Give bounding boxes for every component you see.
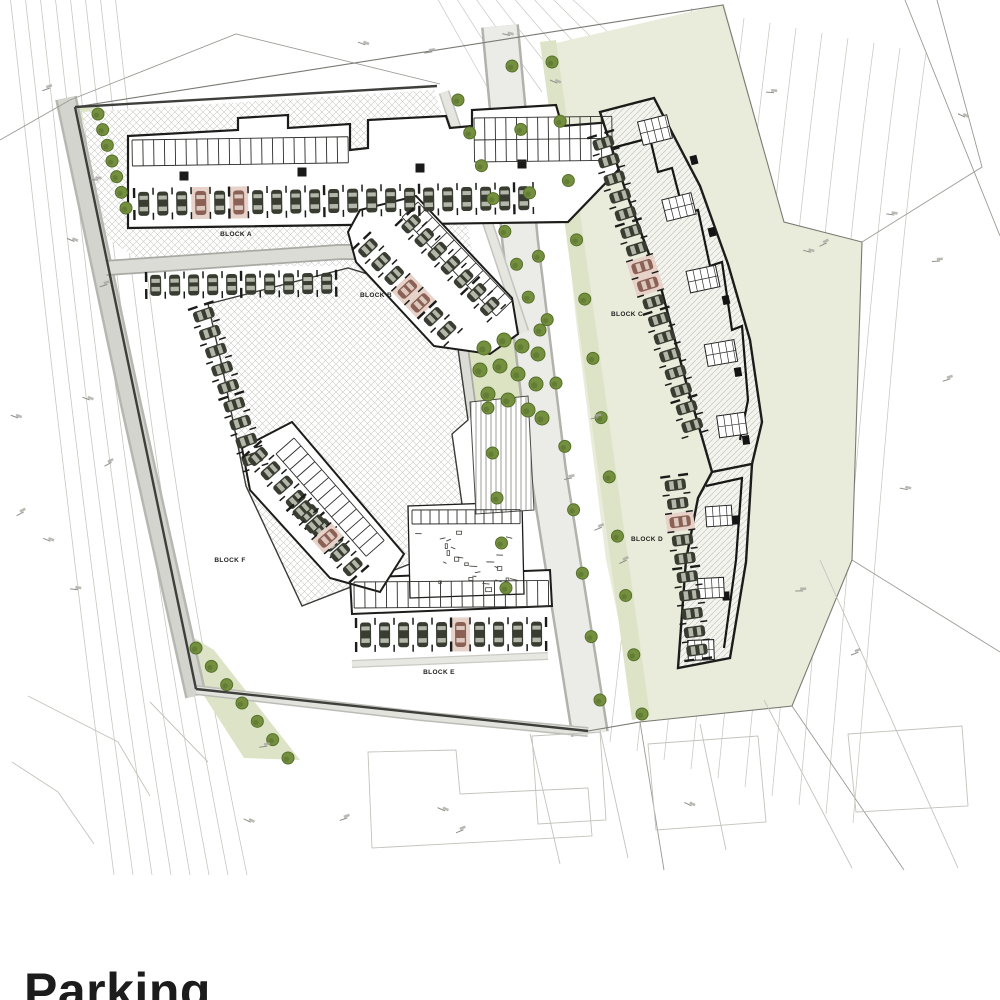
car bbox=[442, 187, 453, 211]
block-label: BLOCK A bbox=[220, 231, 252, 238]
car bbox=[328, 189, 339, 213]
tree-icon bbox=[603, 471, 615, 483]
car bbox=[417, 622, 428, 647]
tree-icon bbox=[506, 60, 518, 72]
car bbox=[245, 274, 256, 295]
tree-icon bbox=[481, 387, 495, 401]
tree-icon bbox=[236, 697, 248, 709]
car bbox=[385, 188, 396, 212]
car bbox=[271, 190, 282, 214]
tree-icon bbox=[221, 679, 233, 691]
tree-icon bbox=[531, 347, 545, 361]
car bbox=[157, 191, 168, 215]
tree-icon bbox=[522, 291, 534, 303]
car bbox=[474, 622, 485, 647]
site-plan-drawing: BLOCK ABLOCK BBLOCK CBLOCK DBLOCK EBLOCK… bbox=[0, 0, 1000, 1000]
car bbox=[176, 191, 187, 215]
tree-icon bbox=[535, 411, 549, 425]
tree-icon bbox=[111, 171, 123, 183]
car bbox=[252, 190, 263, 214]
tree-icon bbox=[529, 377, 543, 391]
car bbox=[264, 273, 275, 294]
accessible-car bbox=[455, 622, 466, 647]
tree-icon bbox=[559, 440, 571, 452]
tree-icon bbox=[282, 752, 294, 764]
tree-icon bbox=[521, 403, 535, 417]
car bbox=[283, 273, 294, 294]
tree-icon bbox=[251, 715, 263, 727]
tree-icon bbox=[92, 108, 104, 120]
tree-icon bbox=[475, 160, 487, 172]
car bbox=[347, 189, 358, 213]
car bbox=[290, 189, 301, 213]
tree-icon bbox=[511, 258, 523, 270]
tree-icon bbox=[571, 234, 583, 246]
stair-core bbox=[518, 160, 527, 169]
tree-icon bbox=[97, 124, 109, 136]
car bbox=[302, 273, 313, 294]
stair-core bbox=[416, 164, 425, 173]
tree-icon bbox=[464, 127, 476, 139]
tree-icon bbox=[511, 367, 525, 381]
car bbox=[512, 622, 523, 647]
block-label: BLOCK B bbox=[360, 292, 392, 299]
tree-icon bbox=[497, 333, 511, 347]
tree-icon bbox=[546, 56, 558, 68]
car bbox=[321, 273, 332, 294]
tree-icon bbox=[120, 202, 132, 214]
accessible-car bbox=[195, 191, 206, 215]
tree-icon bbox=[477, 341, 491, 355]
tree-icon bbox=[594, 694, 606, 706]
car bbox=[207, 274, 218, 295]
stair-core bbox=[298, 168, 307, 177]
car bbox=[309, 189, 320, 213]
block-label: BLOCK E bbox=[423, 669, 455, 676]
tree-icon bbox=[576, 567, 588, 579]
tree-icon bbox=[534, 324, 546, 336]
tree-icon bbox=[585, 631, 597, 643]
car bbox=[366, 188, 377, 212]
tree-icon bbox=[515, 123, 527, 135]
tree-icon bbox=[499, 225, 511, 237]
block-label: BLOCK D bbox=[631, 536, 663, 543]
tree-icon bbox=[562, 175, 574, 187]
car bbox=[461, 187, 472, 211]
car bbox=[360, 622, 371, 647]
car bbox=[214, 191, 225, 215]
car bbox=[138, 192, 149, 216]
tree-icon bbox=[541, 314, 553, 326]
site-plan-canvas: BLOCK ABLOCK BBLOCK CBLOCK DBLOCK EBLOCK… bbox=[0, 0, 1000, 1000]
tree-icon bbox=[452, 94, 464, 106]
block-label: BLOCK C bbox=[611, 311, 643, 318]
tree-icon bbox=[550, 377, 562, 389]
tree-icon bbox=[524, 187, 536, 199]
car bbox=[379, 622, 390, 647]
parking-row bbox=[356, 617, 546, 652]
tree-icon bbox=[568, 504, 580, 516]
tree-icon bbox=[101, 139, 113, 151]
tree-icon bbox=[501, 393, 515, 407]
tree-icon bbox=[500, 582, 512, 594]
tree-icon bbox=[487, 447, 499, 459]
tree-icon bbox=[496, 537, 508, 549]
page-title: Parking bbox=[24, 966, 211, 1000]
car bbox=[436, 622, 447, 647]
tree-icon bbox=[190, 642, 202, 654]
car bbox=[150, 275, 161, 296]
car bbox=[226, 274, 237, 295]
tree-icon bbox=[515, 339, 529, 353]
tree-icon bbox=[493, 359, 507, 373]
car bbox=[493, 622, 504, 647]
tree-icon bbox=[532, 250, 544, 262]
car bbox=[423, 188, 434, 212]
tree-icon bbox=[205, 660, 217, 672]
tree-icon bbox=[482, 402, 494, 414]
tree-icon bbox=[587, 352, 599, 364]
tree-icon bbox=[473, 363, 487, 377]
accessible-car bbox=[233, 190, 244, 214]
tree-icon bbox=[487, 193, 499, 205]
tree-icon bbox=[115, 186, 127, 198]
tree-icon bbox=[491, 492, 503, 504]
tree-icon bbox=[636, 708, 648, 720]
tree-icon bbox=[628, 649, 640, 661]
car bbox=[188, 274, 199, 295]
block-label: BLOCK F bbox=[214, 557, 245, 564]
car bbox=[499, 186, 510, 210]
car bbox=[169, 275, 180, 296]
car bbox=[531, 622, 542, 647]
tree-icon bbox=[106, 155, 118, 167]
tree-icon bbox=[620, 589, 632, 601]
tree-icon bbox=[611, 530, 623, 542]
tree-icon bbox=[579, 293, 591, 305]
car bbox=[398, 622, 409, 647]
tree-icon bbox=[554, 115, 566, 127]
stair-core bbox=[180, 172, 189, 181]
